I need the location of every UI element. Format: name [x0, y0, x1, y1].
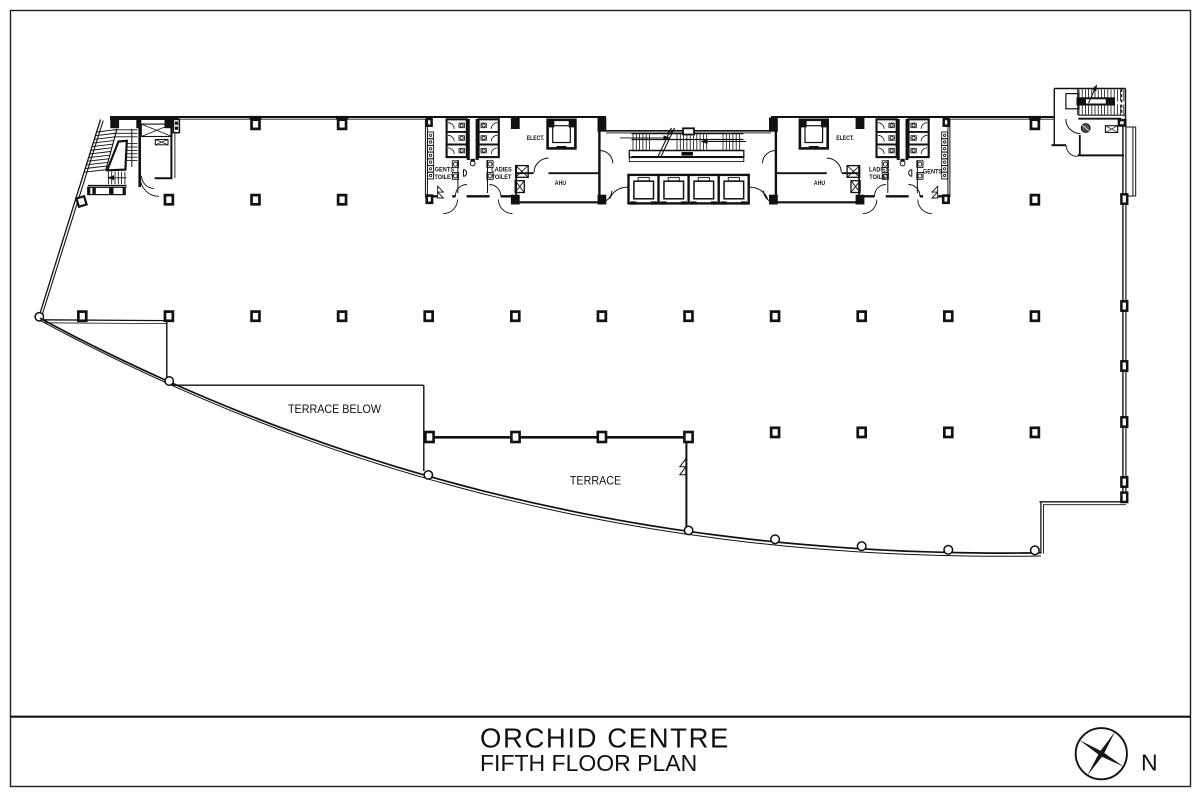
svg-text:TOILET: TOILET: [434, 174, 454, 182]
svg-text:ELECT.: ELECT.: [527, 136, 545, 143]
svg-text:ELECT.: ELECT.: [836, 136, 854, 143]
svg-text:TOILET: TOILET: [869, 174, 889, 182]
svg-text:ORCHID CENTRE: ORCHID CENTRE: [480, 723, 730, 754]
svg-text:FIFTH FLOOR PLAN: FIFTH FLOOR PLAN: [480, 750, 697, 776]
svg-text:GENTS: GENTS: [923, 168, 942, 176]
svg-text:TOILET: TOILET: [492, 174, 512, 182]
svg-text:LADIES: LADIES: [869, 166, 890, 174]
svg-text:LADIES: LADIES: [491, 166, 512, 174]
svg-text:GENTS: GENTS: [435, 166, 454, 174]
svg-text:AHU: AHU: [814, 180, 825, 187]
svg-text:AHU: AHU: [555, 180, 566, 187]
svg-text:TERRACE BELOW: TERRACE BELOW: [288, 404, 381, 417]
svg-text:N: N: [1141, 750, 1158, 776]
svg-text:TERRACE: TERRACE: [570, 475, 622, 488]
